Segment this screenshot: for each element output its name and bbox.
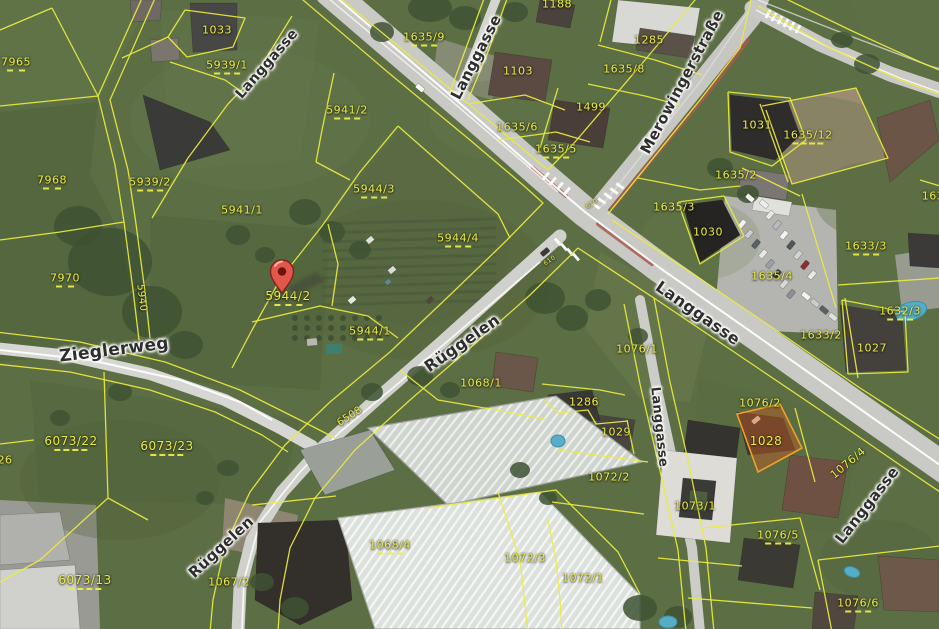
satellite-imagery-layer bbox=[0, 0, 939, 629]
map-canvas[interactable]: 796510335939/15941/21635/911031188128516… bbox=[0, 0, 939, 629]
